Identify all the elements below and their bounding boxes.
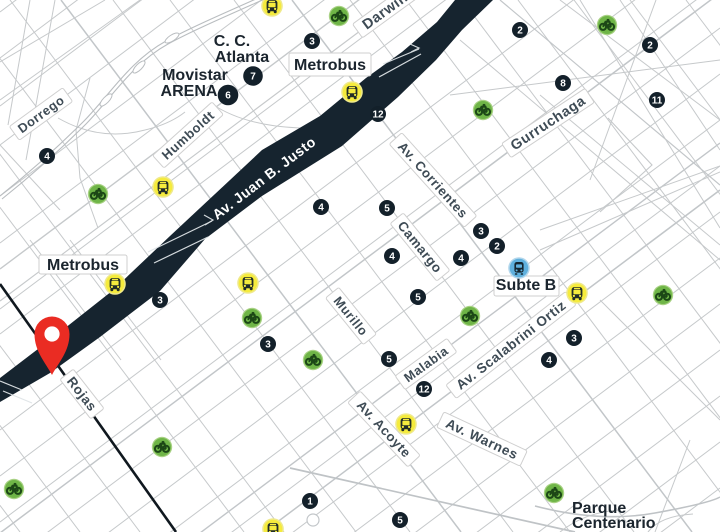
svg-text:Metrobus: Metrobus (294, 57, 366, 74)
svg-text:5: 5 (384, 204, 390, 215)
svg-text:2: 2 (647, 41, 653, 52)
svg-text:2: 2 (494, 242, 500, 253)
svg-text:3: 3 (478, 227, 484, 238)
svg-text:2: 2 (517, 26, 523, 37)
svg-text:7: 7 (250, 72, 256, 83)
svg-text:3: 3 (265, 340, 271, 351)
svg-text:1: 1 (307, 497, 313, 508)
svg-text:11: 11 (652, 96, 663, 107)
svg-text:12: 12 (418, 385, 430, 396)
svg-text:5: 5 (397, 516, 403, 527)
svg-text:4: 4 (389, 252, 395, 263)
svg-text:4: 4 (318, 203, 324, 214)
svg-text:Centenario: Centenario (572, 515, 656, 532)
svg-text:4: 4 (546, 356, 552, 367)
svg-text:Metrobus: Metrobus (47, 257, 119, 274)
svg-text:4: 4 (458, 254, 464, 265)
svg-text:3: 3 (571, 334, 577, 345)
svg-text:5: 5 (386, 355, 392, 366)
svg-text:Movistar: Movistar (162, 67, 228, 84)
svg-text:4: 4 (44, 152, 50, 163)
svg-text:C. C.: C. C. (214, 33, 250, 50)
svg-text:5: 5 (415, 293, 421, 304)
svg-text:12: 12 (372, 110, 384, 121)
svg-text:Subte B: Subte B (496, 277, 556, 294)
svg-text:Atlanta: Atlanta (215, 49, 269, 66)
svg-text:3: 3 (157, 296, 163, 307)
svg-text:8: 8 (560, 79, 566, 90)
svg-text:3: 3 (309, 37, 315, 48)
svg-text:6: 6 (225, 91, 231, 102)
svg-text:ARENA: ARENA (161, 83, 218, 100)
